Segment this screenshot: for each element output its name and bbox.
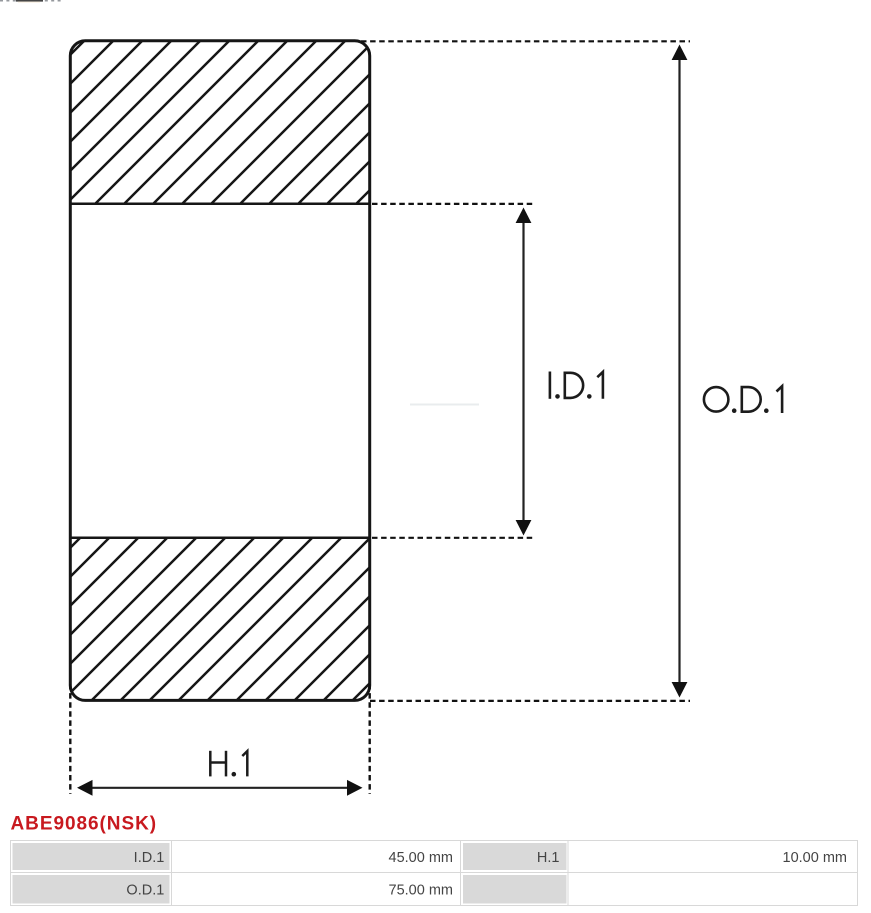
svg-text:75.00 mm: 75.00 mm (389, 882, 453, 898)
svg-text:H.1: H.1 (537, 850, 560, 866)
svg-text:O.D.1: O.D.1 (126, 882, 164, 898)
svg-text:ABE9086(NSK): ABE9086(NSK) (11, 814, 158, 835)
svg-text:45.00 mm: 45.00 mm (389, 850, 453, 866)
svg-text:I.D.1: I.D.1 (134, 850, 165, 866)
svg-text:10.00 mm: 10.00 mm (783, 850, 847, 866)
